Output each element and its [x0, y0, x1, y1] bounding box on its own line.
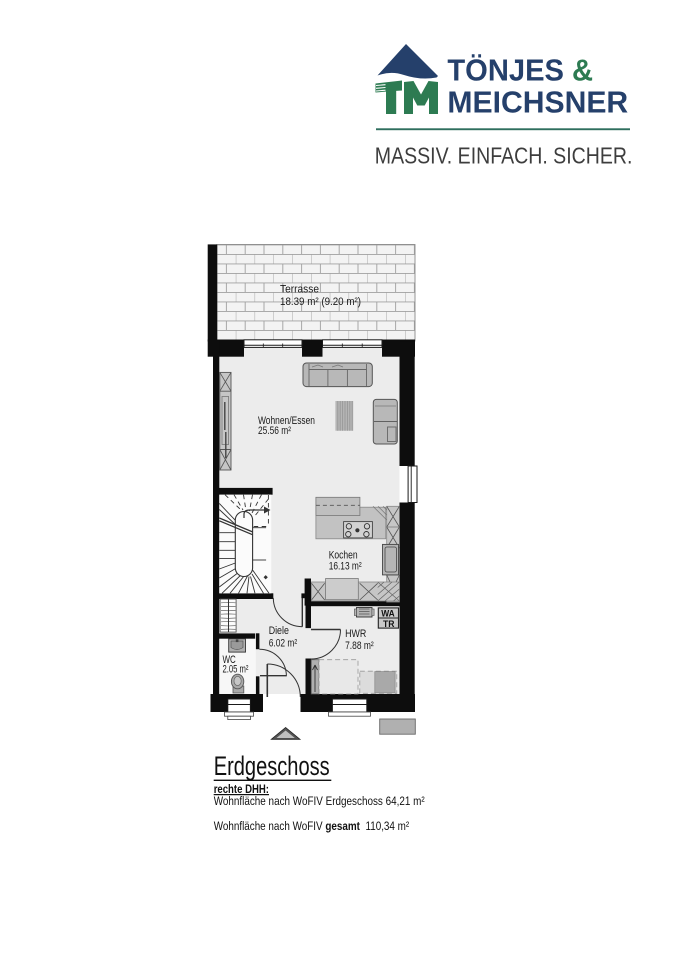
svg-text:25.56 m²: 25.56 m²: [258, 425, 291, 437]
svg-text:Wohnfläche nach WoFIV Erdgesch: Wohnfläche nach WoFIV Erdgeschoss 64,21 …: [214, 794, 425, 808]
svg-text:6.02 m²: 6.02 m²: [269, 638, 298, 650]
svg-text:TÖNJES &: TÖNJES &: [447, 52, 593, 87]
svg-text:Diele: Diele: [269, 625, 289, 637]
svg-text:18.39 m² (9.20 m²): 18.39 m² (9.20 m²): [280, 296, 361, 308]
svg-text:MEICHSNER: MEICHSNER: [447, 85, 628, 120]
svg-text:TR: TR: [383, 619, 395, 629]
svg-text:MASSIV. EINFACH. SICHER.: MASSIV. EINFACH. SICHER.: [375, 143, 633, 169]
svg-text:WA: WA: [381, 608, 395, 618]
svg-text:Erdgeschoss: Erdgeschoss: [214, 751, 330, 781]
svg-text:16.13 m²: 16.13 m²: [329, 560, 362, 572]
svg-text:Wohnfläche nach WoFIV gesamt: Wohnfläche nach WoFIV gesamt 110,34 m²: [214, 819, 409, 833]
svg-text:7.88 m²: 7.88 m²: [345, 640, 374, 652]
svg-text:Terrasse: Terrasse: [280, 284, 319, 296]
svg-text:HWR: HWR: [345, 628, 366, 640]
svg-text:2.05 m²: 2.05 m²: [223, 664, 249, 676]
